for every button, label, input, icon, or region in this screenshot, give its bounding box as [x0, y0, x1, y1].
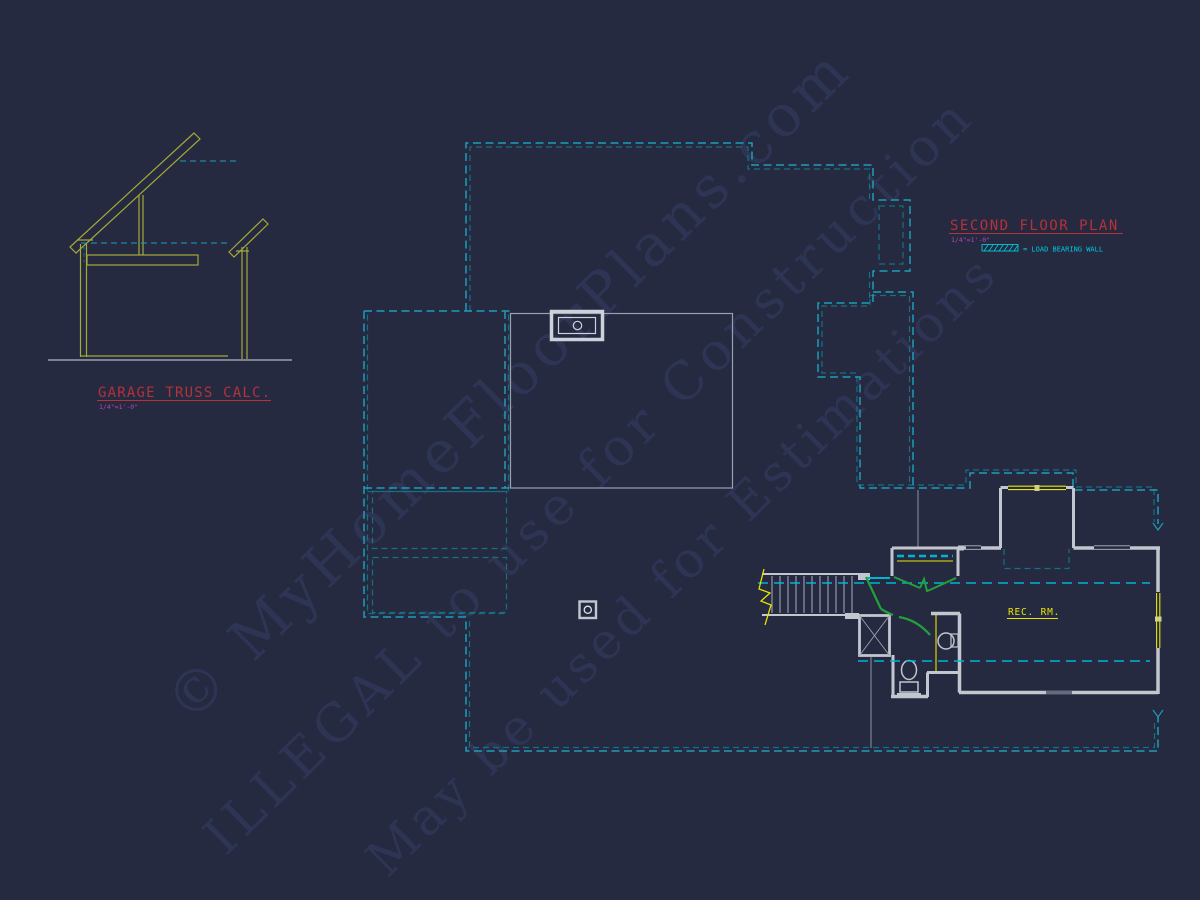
stair-break-line: [759, 569, 771, 625]
interior-roof-lines: [758, 556, 1150, 661]
window-symbol-right: [1094, 546, 1130, 550]
east-wall-tick: [1155, 617, 1162, 622]
rec-room-north-wall: [958, 546, 1160, 550]
truss-title: GARAGE TRUSS CALC.: [98, 385, 271, 401]
alcove-walls: [1001, 488, 1074, 549]
cad-drawing: © MyHomeFloorPlans.com ILLEGAL to use fo…: [0, 0, 1200, 900]
chase-x-box: [845, 616, 890, 656]
legend-label: = LOAD BEARING WALL: [1023, 246, 1103, 254]
plan-title: SECOND FLOOR PLAN: [950, 218, 1119, 234]
truss-rafter: [70, 133, 200, 253]
alcove-overhead-dash: [1004, 549, 1069, 569]
rec-room-label: REC. RM.: [1008, 607, 1060, 618]
bathroom-walls: [891, 614, 960, 698]
watermark-line-2: ILLEGAL to use for Construction: [193, 85, 987, 866]
truss-post: [139, 195, 143, 255]
plan-scale: 1/4"=1'-0": [951, 236, 990, 244]
truss-ceiling-beam: [87, 255, 198, 265]
truss-scale: 1/4"=1'-0": [99, 403, 138, 411]
sink: [938, 633, 958, 649]
bathroom-door: [899, 617, 930, 635]
truss-heel-ticks: [77, 240, 249, 251]
toilet: [897, 661, 921, 695]
stair-treads: [772, 576, 852, 613]
watermark: © MyHomeFloorPlans.com ILLEGAL to use fo…: [152, 34, 1009, 888]
truss-reference-lines: [48, 161, 292, 360]
cad-canvas[interactable]: © MyHomeFloorPlans.com ILLEGAL to use fo…: [0, 0, 1200, 900]
load-bearing-legend: = LOAD BEARING WALL: [982, 245, 1103, 254]
double-door: [894, 577, 956, 591]
watermark-line-3: May be used for Estimations: [355, 243, 1010, 888]
door-swings: [866, 577, 956, 635]
truss-right-wall: [242, 247, 247, 359]
window-symbol-left: [964, 546, 981, 550]
truss-detail-diagram: [70, 133, 268, 359]
roof-arrow-upper: [1153, 523, 1163, 530]
roof-arrow-lower: [1153, 710, 1163, 717]
stairs: [762, 573, 870, 615]
landing-room-walls: [892, 548, 966, 576]
load-bearing-hatch-icon: [982, 245, 1018, 252]
